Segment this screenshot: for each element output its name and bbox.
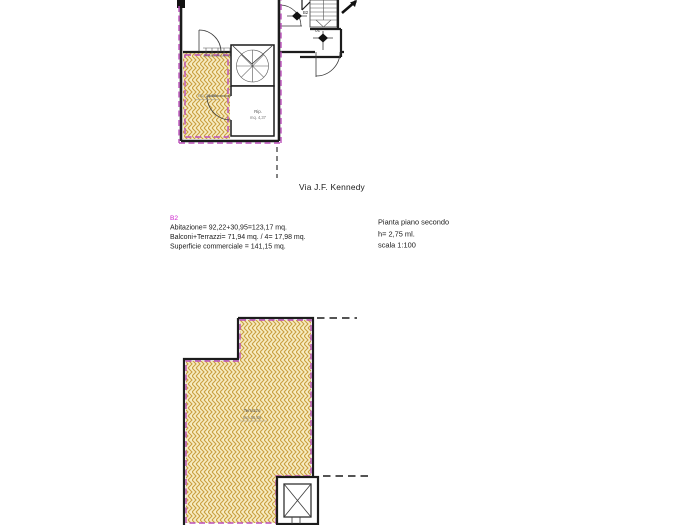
unit-code: B2: [170, 215, 178, 222]
plan-info-block: Pianta piano secondo h= 2,75 ml. scala 1…: [378, 218, 449, 250]
info-line-abitazione: Abitazione= 92,22+30,95=123,17 mq.: [170, 225, 287, 232]
info-line-balconi: Balconi+Terrazzi= 71,94 mq. / 4= 17,98 m…: [170, 234, 306, 241]
entrance-jamb: [302, 0, 310, 10]
info-line-superficie: Superficie commerciale = 141,15 mq.: [170, 244, 286, 251]
drawing-sheet: Rip. mq. 4,37 mq. 16,08 B: [0, 0, 700, 525]
street-label: Via J.F. Kennedy: [299, 182, 366, 192]
terrace-area-label: mq. 55,86: [243, 415, 262, 420]
stairwell-unit: B2 B2: [280, 0, 357, 77]
upper-floor-plan: Rip. mq. 4,37 mq. 16,08 B: [177, 0, 357, 178]
balcony-area-label: mq. 16,08: [198, 93, 217, 98]
wall-stub: [177, 0, 185, 8]
plan-height: h= 2,75 ml.: [378, 230, 415, 239]
door-arc-landing: [316, 52, 340, 77]
landing-walls: [280, 29, 344, 57]
entrance-door-marker-2: B2: [313, 28, 333, 51]
storage-label: Rip.: [254, 109, 262, 114]
door-diamond-icon: [292, 12, 302, 21]
lower-floor-plan: Terrazzo mq. 55,86: [184, 318, 373, 525]
storage-area-label: mq. 4,37: [250, 115, 267, 120]
entrance-door-marker-1: B2: [287, 10, 309, 21]
spiral-staircase: [231, 45, 274, 86]
terrace-label: Terrazzo: [244, 408, 261, 413]
floor-plan-canvas: Rip. mq. 4,37 mq. 16,08 B: [0, 0, 700, 525]
straight-staircase: [310, 0, 337, 27]
door-label-1: B2: [303, 10, 309, 15]
plan-scale: scala 1:100: [378, 241, 416, 250]
door-label-2: B2: [315, 28, 321, 33]
plan-title: Pianta piano secondo: [378, 218, 449, 227]
door-diamond-icon: [318, 34, 328, 43]
unit-info-block: B2 Abitazione= 92,22+30,95=123,17 mq. Ba…: [170, 215, 306, 251]
shaft-skylight: [277, 477, 318, 524]
